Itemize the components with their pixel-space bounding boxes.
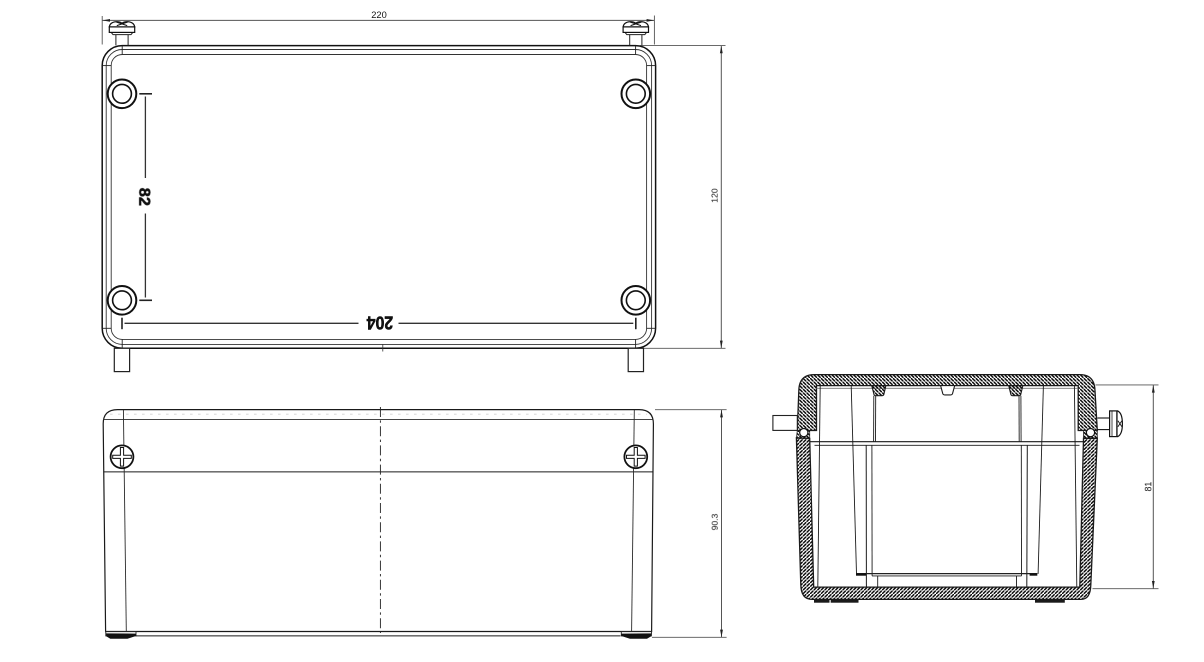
svg-text:82: 82: [135, 188, 152, 206]
svg-text:120: 120: [710, 188, 720, 203]
svg-text:90.3: 90.3: [710, 513, 720, 530]
svg-text:220: 220: [371, 10, 387, 20]
svg-text:204: 204: [366, 313, 393, 334]
svg-text:81: 81: [1143, 482, 1153, 492]
